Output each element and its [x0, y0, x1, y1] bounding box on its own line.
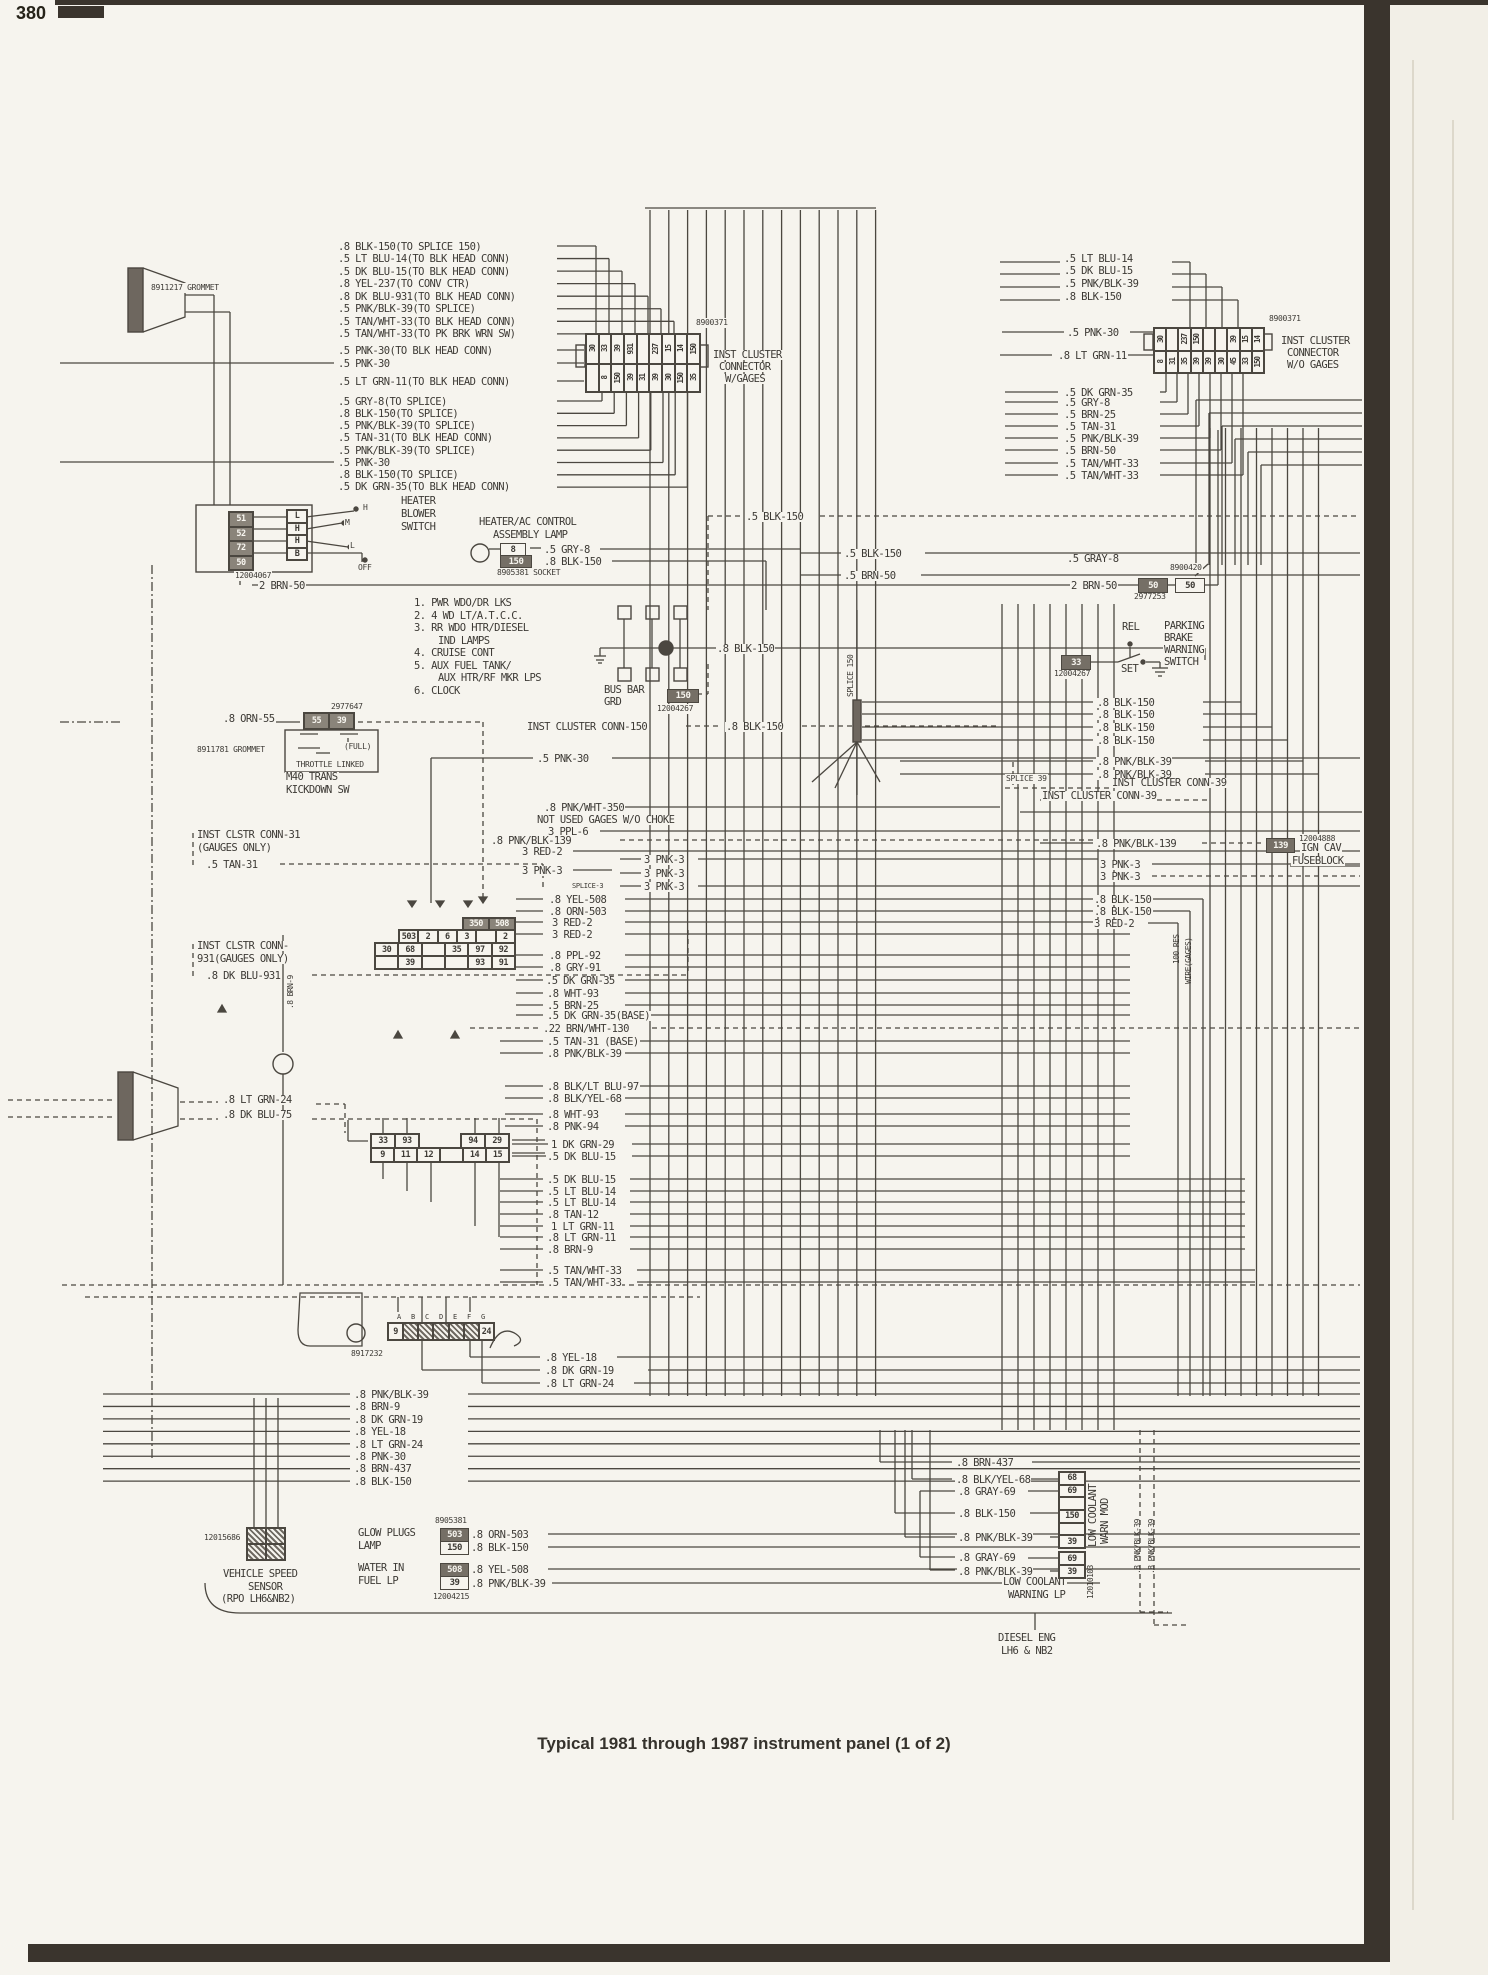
- wire-label: .22 BRN/WHT-130: [542, 1024, 630, 1034]
- wire-label: .8 ORN-503: [548, 907, 607, 917]
- wire-label: .8 BRN-9: [546, 1245, 594, 1255]
- wire-label: .8 PNK/BLK-39: [1096, 757, 1172, 767]
- connector-cell: 35: [687, 364, 700, 392]
- wire-label: IND LAMPS: [437, 636, 491, 646]
- wire-label: .8 PNK/BLK-39: [353, 1390, 429, 1400]
- wire-label: LH6 & NB2: [1000, 1646, 1054, 1656]
- inst-cluster-conn-w-gages-bottom: 81503931393015035: [585, 363, 701, 393]
- wire-label: DIESEL ENG: [997, 1633, 1056, 1643]
- connector-cell: 150: [687, 334, 700, 364]
- connector-cell: [445, 956, 468, 969]
- wire-label: .8 PNK/BLK-39: [546, 1049, 622, 1059]
- wire-label: INST CLSTR CONN-31: [196, 830, 301, 840]
- wire-label: .8 BRN-437: [955, 1458, 1014, 1468]
- terminal-box: 39: [440, 1576, 469, 1590]
- wire-label: .8 PNK/BLK-139: [1095, 839, 1177, 849]
- wire-label: .8 PNK-94: [546, 1122, 600, 1132]
- terminal-box: 150: [500, 555, 532, 568]
- low-coolant-warn-mod: 686915039: [1058, 1471, 1086, 1549]
- wire-label: W/O GAGES: [1286, 360, 1340, 370]
- wire-label: G: [480, 1312, 486, 1322]
- wire-label: .8 BLK-150: [1096, 723, 1155, 733]
- connector-cell: 35: [1178, 351, 1190, 373]
- connector-cell: 15: [486, 1148, 509, 1162]
- wire-label: .8 BRN-9: [353, 1402, 401, 1412]
- wire-label: .8 PNK/BLK-39: [470, 1579, 546, 1589]
- connector-cell: [247, 1544, 266, 1560]
- wire-label: .8 DK GRN-19: [544, 1366, 615, 1376]
- connector-cell: 55: [304, 713, 329, 729]
- wire-label: 3 RED-2: [1093, 919, 1135, 929]
- wire-label: THROTTLE LINKED: [295, 760, 365, 770]
- connector-cell: 237: [649, 334, 662, 364]
- wire-label: 3 RED-2: [551, 930, 593, 940]
- wire-label: VEHICLE SPEED: [222, 1569, 298, 1579]
- wire-label: REL: [1121, 622, 1140, 632]
- connector-cell: [418, 1323, 433, 1340]
- wire-label: .8 BLK-150: [470, 1543, 529, 1553]
- wire-label: .8 BLK-150(TO SPLICE 150): [337, 242, 482, 252]
- wire-label: .5 DK BLU-15: [546, 1175, 617, 1185]
- wire-label: E: [452, 1312, 458, 1322]
- wire-label: .8 WHT-93: [546, 1110, 600, 1120]
- wire-label: SENSOR: [247, 1582, 283, 1592]
- wire-label: 3 RED-2: [551, 918, 593, 928]
- wire-label: .5 TAN-31: [1063, 422, 1117, 432]
- connector-cell: [637, 334, 650, 364]
- wire-label: .8 BLK-150: [543, 557, 602, 567]
- connector-cell: [375, 956, 398, 969]
- wire-label: .8 BLK-150: [1096, 710, 1155, 720]
- wire-label: B: [410, 1312, 416, 1322]
- wire-label: .8 BLK-150: [1093, 907, 1152, 917]
- wire-label: INST CLUSTER CONN-39: [1041, 791, 1157, 801]
- wire-label: INST CLUSTER: [712, 350, 783, 360]
- wire-label: INST CLSTR CONN-: [196, 941, 290, 951]
- wire-label: .8 PNK/BLK-39: [1133, 1518, 1143, 1575]
- mid-connector-row-d: 399391: [374, 955, 516, 970]
- wire-label: .8 GRAY-69: [957, 1553, 1016, 1563]
- wire-label: .5 DK GRN-35: [545, 976, 616, 986]
- wire-label: 5. AUX FUEL TANK/: [413, 661, 512, 671]
- paper-crease: [1412, 60, 1414, 1910]
- connector-cell: 29: [485, 1134, 509, 1148]
- connector-cell: 30: [1154, 328, 1166, 351]
- wire-label: .5 GRY-8(TO SPLICE): [337, 397, 448, 407]
- connector-cell: [1203, 328, 1215, 351]
- wire-label: .5 DK BLU-15(TO BLK HEAD CONN): [337, 267, 511, 277]
- wire-label: CONNECTOR: [1286, 348, 1340, 358]
- wire-label: .8 PNK/BLK-139: [490, 836, 572, 846]
- connector-cell: 39: [611, 334, 624, 364]
- wire-label: .5 DK BLU-15: [546, 1152, 617, 1162]
- connector-cell: 9: [371, 1148, 394, 1162]
- wire-label: .8 DK BLU-75: [222, 1110, 293, 1120]
- terminal-box: 50: [1175, 578, 1205, 593]
- wire-label: OFF: [357, 563, 373, 573]
- low-coolant-lamp-39: 39: [1058, 1564, 1086, 1579]
- wire-label: 12004215: [432, 1592, 470, 1602]
- wire-label: .5 TAN/WHT-33: [1063, 471, 1139, 481]
- wire-label: BLOWER: [400, 509, 436, 519]
- terminal-box: 150: [667, 689, 699, 703]
- connector-cell: 69: [1059, 1485, 1085, 1498]
- connector-cell: 94: [461, 1134, 485, 1148]
- wire-label: .8 BLK-150: [1063, 292, 1122, 302]
- wire-label: .8 BLK-150(TO SPLICE): [337, 409, 459, 419]
- schematic-page: 380 Typical 1981 through 1987 instrument…: [0, 0, 1488, 1975]
- connector-cell: H: [287, 535, 307, 548]
- wire-label: C: [424, 1312, 430, 1322]
- wire-label: 1. PWR WDO/DR LKS: [413, 598, 512, 608]
- connector-cell: 50: [229, 556, 253, 571]
- wire-label: .8 PPL-92: [548, 951, 602, 961]
- wire-label: SPLICE 39: [1005, 774, 1048, 784]
- wire-label: .5 TAN/WHT-33(TO PK BRK WRN SW): [337, 329, 516, 339]
- wire-label: SET: [1120, 664, 1139, 674]
- wiring-lines: [0, 0, 1488, 1975]
- wire-label: .5 BLK-150: [843, 549, 902, 559]
- connector-cell: 15: [1240, 328, 1252, 351]
- terminal-box: 33: [1061, 655, 1091, 670]
- wire-label: IGN CAV: [1300, 843, 1342, 853]
- wire-label: .5 BRN-50: [843, 571, 897, 581]
- connector-cell: 39: [329, 713, 354, 729]
- wire-label: F: [466, 1312, 472, 1322]
- blower-switch-terminals: LHHB: [286, 509, 308, 561]
- wire-label: 8911217 GROMMET: [150, 283, 220, 293]
- connector-cell: 30: [1215, 351, 1227, 373]
- connector-cell: [1166, 328, 1178, 351]
- wire-label: .8 DK BLU-931: [205, 971, 281, 981]
- wire-label: (GAUGES ONLY): [196, 843, 272, 853]
- wire-label: 8905381: [434, 1516, 468, 1526]
- wire-label: .5 TAN/WHT-33: [1063, 459, 1139, 469]
- wire-label: 3 PNK-3: [1099, 860, 1141, 870]
- wire-label: 8917232: [350, 1349, 384, 1359]
- wire-label: BUS BAR: [603, 685, 645, 695]
- connector-cell: 150: [1059, 1510, 1085, 1523]
- wire-label: .5 LT BLU-14: [546, 1198, 617, 1208]
- wire-label: CONNECTOR: [718, 362, 772, 372]
- connector-cell: 39: [1059, 1535, 1085, 1548]
- wire-label: M: [344, 518, 351, 528]
- connector-cell: [586, 364, 599, 392]
- connector-cell: 9: [388, 1323, 403, 1340]
- inst-cluster-conn-wo-gages-bottom: 831353939304533150: [1153, 350, 1265, 374]
- wire-label: AUX HTR/RF MKR LPS: [437, 673, 542, 683]
- connector-cell: [1059, 1523, 1085, 1536]
- wire-label: WATER IN: [357, 1563, 405, 1573]
- connector-cell: 14: [463, 1148, 486, 1162]
- connector-cell: 39: [1059, 1565, 1085, 1578]
- wire-label: 2. 4 WD LT/A.T.C.C.: [413, 611, 524, 621]
- wire-label: 2977647: [330, 702, 364, 712]
- conn-9-15: 911121415: [370, 1147, 510, 1163]
- connector-cell: 150: [1191, 328, 1203, 351]
- wire-label: .8 LT GRN-11: [1057, 351, 1128, 361]
- connector-cell: [464, 1323, 479, 1340]
- connector-cell: 33: [599, 334, 612, 364]
- wire-label: .8 BLK-150: [1096, 698, 1155, 708]
- wire-label: .8 LT GRN-24: [544, 1379, 615, 1389]
- terminal-box: 503: [440, 1528, 469, 1542]
- wire-label: .8 PNK/WHT-350: [543, 803, 625, 813]
- wire-label: .8 BRN-9: [286, 974, 296, 1010]
- wire-label: .5 PNK-30: [337, 359, 391, 369]
- wire-label: .5 TAN/WHT-33(TO BLK HEAD CONN): [337, 317, 516, 327]
- wire-label: .5 LT GRN-11(TO BLK HEAD CONN): [337, 377, 511, 387]
- wire-label: FUSEBLOCK: [1291, 856, 1345, 866]
- wire-label: .5 DK GRN-35(BASE): [546, 1011, 651, 1021]
- wire-label: 100 RES: [1172, 933, 1182, 965]
- wire-label: .5 LT BLU-14: [1063, 254, 1134, 264]
- wire-label: (RPO LH6&NB2): [220, 1594, 296, 1604]
- connector-cell: 237: [1178, 328, 1190, 351]
- connector-cell: 150: [675, 364, 688, 392]
- terminal-box: 139: [1266, 838, 1295, 853]
- wire-label: .8 PNK-30: [353, 1452, 407, 1462]
- wire-label: .5 PNK/BLK-39: [1063, 279, 1139, 289]
- wire-label: .8 DK GRN-19: [353, 1415, 424, 1425]
- wire-label: .8 LT GRN-24: [353, 1440, 424, 1450]
- connector-cell: 31: [1166, 351, 1178, 373]
- wire-label: SWITCH: [400, 522, 436, 532]
- terminal-box: 150: [440, 1541, 469, 1555]
- wire-label: INST CLUSTER CONN-150: [526, 722, 648, 732]
- connector-cell: [247, 1528, 266, 1544]
- wire-label: .5 PNK/BLK-39(TO SPLICE): [337, 421, 476, 431]
- wire-label: .8 GRY-91: [548, 963, 602, 973]
- connector-cell: 39: [624, 364, 637, 392]
- wire-label: .8 LT GRN-24: [222, 1095, 293, 1105]
- wire-label: ASSEMBLY LAMP: [492, 530, 568, 540]
- wire-label: 3 PNK-3: [643, 855, 685, 865]
- wire-label: M40 TRANS: [285, 772, 339, 782]
- wire-label: 8900420: [1169, 563, 1203, 573]
- bottom-connector: 924: [387, 1322, 495, 1341]
- connector-cell: [422, 956, 445, 969]
- wire-label: .8 LT GRN-11: [546, 1233, 617, 1243]
- page-right-margin: [1390, 0, 1488, 1975]
- wire-label: .8 BLK-150: [353, 1477, 412, 1487]
- connector-cell: 15: [662, 334, 675, 364]
- connector-cell: 11: [394, 1148, 417, 1162]
- wire-label: WARNING: [1163, 645, 1205, 655]
- wire-label: W/GAGES: [724, 374, 766, 384]
- wire-label: .8 BLK-150: [1096, 736, 1155, 746]
- connector-cell: 14: [1252, 328, 1264, 351]
- connector-cell: 30: [662, 364, 675, 392]
- connector-cell: 91: [492, 956, 515, 969]
- connector-cell: 93: [468, 956, 491, 969]
- connector-cell: L: [287, 510, 307, 523]
- wire-label: .8 BLK/LT BLU-97: [546, 1082, 640, 1092]
- wire-label: GLOW PLUGS: [357, 1528, 416, 1538]
- connector-cell: 14: [675, 334, 688, 364]
- wire-label: SPLICE-3: [571, 881, 604, 891]
- wire-label: 6. CLOCK: [413, 686, 461, 696]
- wire-label: .5 DK BLU-15: [1063, 266, 1134, 276]
- wire-label: SWITCH: [1163, 657, 1199, 667]
- wire-label: NOT USED GAGES W/O CHOKE: [536, 815, 675, 825]
- wire-label: FUEL LP: [357, 1576, 399, 1586]
- wire-label: 1 LT GRN-11: [550, 1222, 615, 1232]
- wire-label: .8 YEL-508: [548, 895, 607, 905]
- wire-label: 2 BRN-50: [1070, 581, 1118, 591]
- wire-label: 8905381 SOCKET: [496, 568, 561, 578]
- inst-cluster-conn-w-gages-top: 3033399312371514150: [585, 333, 701, 365]
- top-edge-bar: [55, 0, 1488, 5]
- wire-label: H: [362, 503, 369, 513]
- connector-cell: 150: [611, 364, 624, 392]
- wire-label: .8 ORN-503: [470, 1530, 529, 1540]
- wire-label: .5 PNK-30: [1066, 328, 1120, 338]
- wire-label: 2 BRN-50: [258, 581, 306, 591]
- connector-cell: [1215, 328, 1227, 351]
- wire-label: .5 TAN/WHT-33: [546, 1266, 622, 1276]
- wire-label: BRAKE: [1163, 633, 1194, 643]
- connector-cell: 51: [229, 512, 253, 527]
- vss-connector-bottom: [246, 1543, 286, 1561]
- connector-cell: 24: [479, 1323, 494, 1340]
- wire-label: .8 BLK-150: [1093, 895, 1152, 905]
- connector-cell: 12: [417, 1148, 440, 1162]
- diagram-caption: Typical 1981 through 1987 instrument pan…: [0, 1734, 1488, 1754]
- wire-label: .5 LT BLU-14: [546, 1187, 617, 1197]
- wire-label: 12004267: [656, 704, 694, 714]
- connector-cell: 8: [599, 364, 612, 392]
- connector-cell: H: [287, 523, 307, 536]
- terminal-box: 50: [1138, 578, 1168, 593]
- wire-label: 3 PNK-3: [1099, 872, 1141, 882]
- wire-label: 12010103: [1086, 1564, 1096, 1600]
- wire-label: .5 GRY-8: [543, 545, 591, 555]
- wire-label: .8 BRN-437: [353, 1464, 412, 1474]
- wire-label: PARKING: [1163, 621, 1205, 631]
- connector-cell: [440, 1148, 463, 1162]
- connector-cell: 68: [1059, 1472, 1085, 1485]
- wire-label: .8 TAN-12: [546, 1210, 600, 1220]
- wire-label: .5 TAN/WHT-33: [546, 1278, 622, 1288]
- wire-label: .5 BRN-25: [1063, 410, 1117, 420]
- wire-label: HEATER/AC CONTROL: [478, 517, 577, 527]
- wire-label: .5 GRY-8: [1063, 398, 1111, 408]
- wire-label: .8 WHT-93: [546, 989, 600, 999]
- wire-label: 2977253: [1133, 592, 1167, 602]
- wire-label: L: [349, 541, 356, 551]
- connector-cell: 39: [1191, 351, 1203, 373]
- bottom-edge-bar: [28, 1944, 1390, 1962]
- wire-label: 8911781 GROMMET: [196, 745, 266, 755]
- connector-cell: 30: [586, 334, 599, 364]
- connector-cell: 52: [229, 527, 253, 542]
- connector-cell: [1059, 1497, 1085, 1510]
- connector-cell: 39: [1227, 328, 1239, 351]
- wire-label: .5 LT BLU-14(TO BLK HEAD CONN): [337, 254, 511, 264]
- connector-cell: 8: [1154, 351, 1166, 373]
- wire-label: .5 PNK-30: [337, 458, 391, 468]
- wire-label: WIRE(GAGES): [1184, 937, 1194, 985]
- page-number: 380: [16, 3, 46, 24]
- wire-label: LOW COOLANT: [1088, 1483, 1098, 1548]
- wire-label: .8 YEL-237(TO CONV CTR): [337, 279, 471, 289]
- connector-cell: [266, 1544, 285, 1560]
- wire-label: 931(GAUGES ONLY): [196, 954, 290, 964]
- wire-label: 8900371: [1268, 314, 1302, 324]
- terminal-box: 508: [440, 1563, 469, 1577]
- connector-cell: 39: [398, 956, 421, 969]
- wire-label: SPLICE 150: [846, 654, 856, 698]
- wire-label: 3 PNK-3: [643, 869, 685, 879]
- connector-cell: 33: [371, 1134, 395, 1148]
- wire-label: .8 GRAY-69: [957, 1487, 1016, 1497]
- wire-label: 1 DK GRN-29: [550, 1140, 615, 1150]
- connector-cell: [449, 1323, 464, 1340]
- connector-cell: [433, 1323, 448, 1340]
- connector-cell: 93: [395, 1134, 419, 1148]
- wire-label: .8 PNK/BLK-39: [957, 1533, 1033, 1543]
- wire-label: .8 YEL-18: [353, 1427, 407, 1437]
- wire-label: .8 BLK-150: [725, 722, 784, 732]
- wire-label: LAMP: [357, 1541, 382, 1551]
- wire-label: HEATER: [400, 496, 436, 506]
- connector-cell: B: [287, 548, 307, 561]
- wire-label: 3. RR WDO HTR/DIESEL: [413, 623, 529, 633]
- kickdown-connector: 5539: [303, 712, 355, 730]
- wire-label: .5 BRN-50: [1063, 446, 1117, 456]
- wire-label: .5 TAN-31 (BASE): [546, 1037, 640, 1047]
- wire-label: .8 BLK-150: [716, 644, 775, 654]
- wire-label: .8 YEL-18: [544, 1353, 598, 1363]
- connector-cell: 39: [649, 364, 662, 392]
- wire-label: INST CLUSTER CONN-39: [1111, 778, 1227, 788]
- wire-label: 12015686: [203, 1533, 241, 1543]
- wire-label: GRD: [603, 697, 622, 707]
- wire-label: A: [396, 1312, 402, 1322]
- wire-label: INST CLUSTER: [1280, 336, 1351, 346]
- wire-label: .8 PNK/BLK-39: [1147, 1518, 1157, 1575]
- wire-label: WARNING LP: [1007, 1590, 1066, 1600]
- wire-label: .5 PNK-30(TO BLK HEAD CONN): [337, 346, 493, 356]
- heater-blower-connector: 51527250: [228, 511, 254, 571]
- wire-label: (FULL): [343, 742, 372, 752]
- connector-cell: [266, 1528, 285, 1544]
- wire-label: .8 DK BLU-931(TO BLK HEAD CONN): [337, 292, 516, 302]
- wire-label: .8 BLK/YEL-68: [546, 1094, 622, 1104]
- connector-cell: [403, 1323, 418, 1340]
- book-spine-bar: [1364, 0, 1390, 1962]
- connector-cell: 150: [1252, 351, 1264, 373]
- wire-label: 4. CRUISE CONT: [413, 648, 495, 658]
- wire-label: .5 PNK/BLK-39(TO SPLICE): [337, 304, 476, 314]
- wire-label: 12004267: [1053, 669, 1091, 679]
- wire-label: .5 GRAY-8: [1066, 554, 1120, 564]
- wire-label: .8 BLK-150: [957, 1509, 1016, 1519]
- connector-cell: 39: [1203, 351, 1215, 373]
- wire-label: .5 DK GRN-35(TO BLK HEAD CONN): [337, 482, 511, 492]
- connector-cell: 31: [637, 364, 650, 392]
- page-number-rule: [58, 6, 104, 18]
- wire-label: D: [438, 1312, 444, 1322]
- wire-label: 3 RED-2: [521, 847, 563, 857]
- wire-label: 3 PNK-3: [521, 866, 563, 876]
- wire-label: 3 PNK-3: [643, 882, 685, 892]
- wire-label: KICKDOWN SW: [285, 785, 350, 795]
- wire-label: 8900371: [695, 318, 729, 328]
- connector-cell: 931: [624, 334, 637, 364]
- wire-label: .5 TAN-31(TO BLK HEAD CONN): [337, 433, 493, 443]
